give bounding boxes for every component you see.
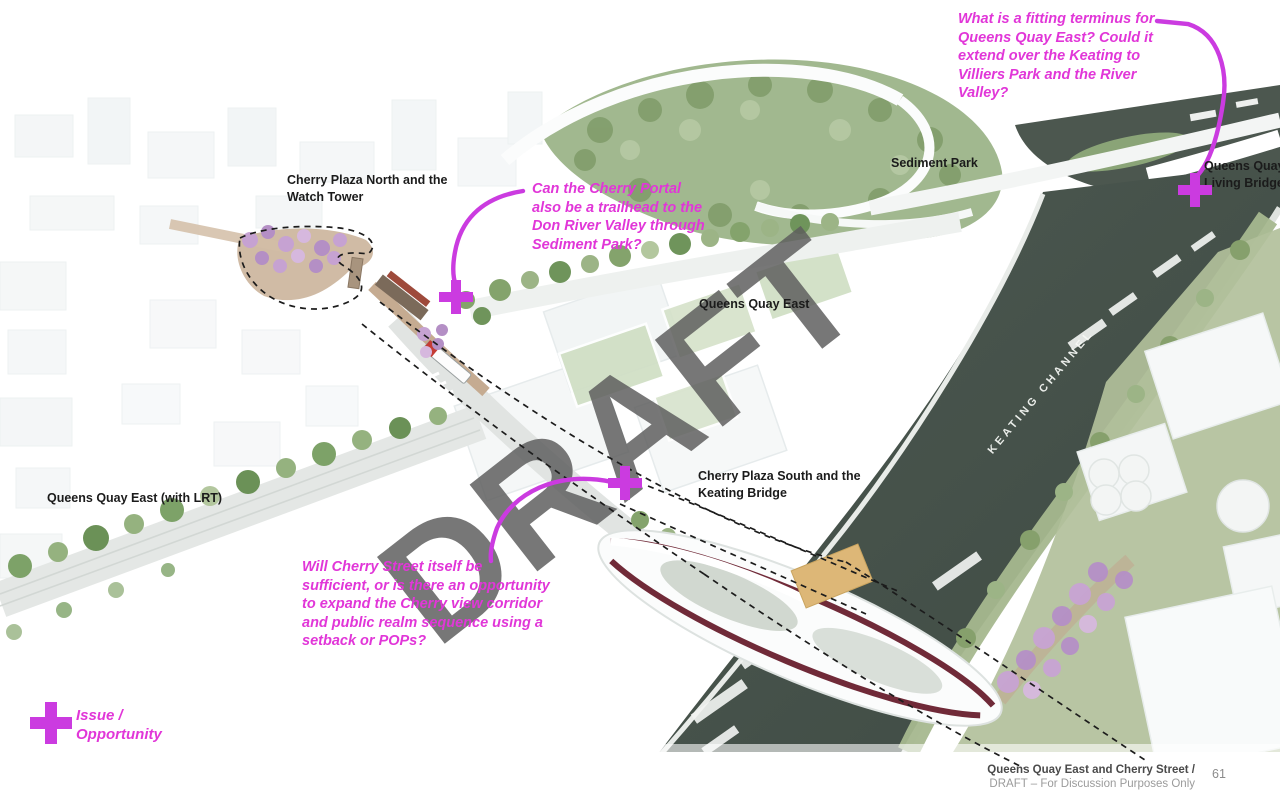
plus-icon bbox=[439, 280, 473, 314]
callout-cherry-street: Will Cherry Street itself be sufficient,… bbox=[302, 558, 550, 651]
label-qq-living-bridge: Queens Quay Living Bridge bbox=[1204, 158, 1280, 191]
label-qq-east-lrt: Queens Quay East (with LRT) bbox=[47, 490, 222, 507]
page-footer: Queens Quay East and Cherry Street / DRA… bbox=[987, 763, 1195, 791]
legend-label: Issue / Opportunity bbox=[76, 706, 162, 744]
label-sediment-park: Sediment Park bbox=[891, 155, 978, 172]
label-cherry-plaza-south: Cherry Plaza South and the Keating Bridg… bbox=[698, 468, 861, 501]
label-cherry-plaza-north: Cherry Plaza North and the Watch Tower bbox=[287, 172, 447, 205]
plus-icon bbox=[608, 466, 642, 500]
callout-terminus: What is a fitting terminus for Queens Qu… bbox=[958, 10, 1155, 103]
document-page: DRAFT Cherry Plaza North and the Watch T… bbox=[0, 0, 1280, 805]
page-number: 61 bbox=[1212, 767, 1226, 781]
legend-plus-icon bbox=[30, 702, 72, 744]
label-qq-east: Queens Quay East bbox=[699, 296, 809, 313]
callout-cherry-portal: Can the Cherry Portal also be a trailhea… bbox=[532, 180, 705, 254]
footer-title: Queens Quay East and Cherry Street / bbox=[987, 763, 1195, 777]
footer-subtitle: DRAFT – For Discussion Purposes Only bbox=[987, 777, 1195, 791]
plus-icon bbox=[1178, 173, 1212, 207]
